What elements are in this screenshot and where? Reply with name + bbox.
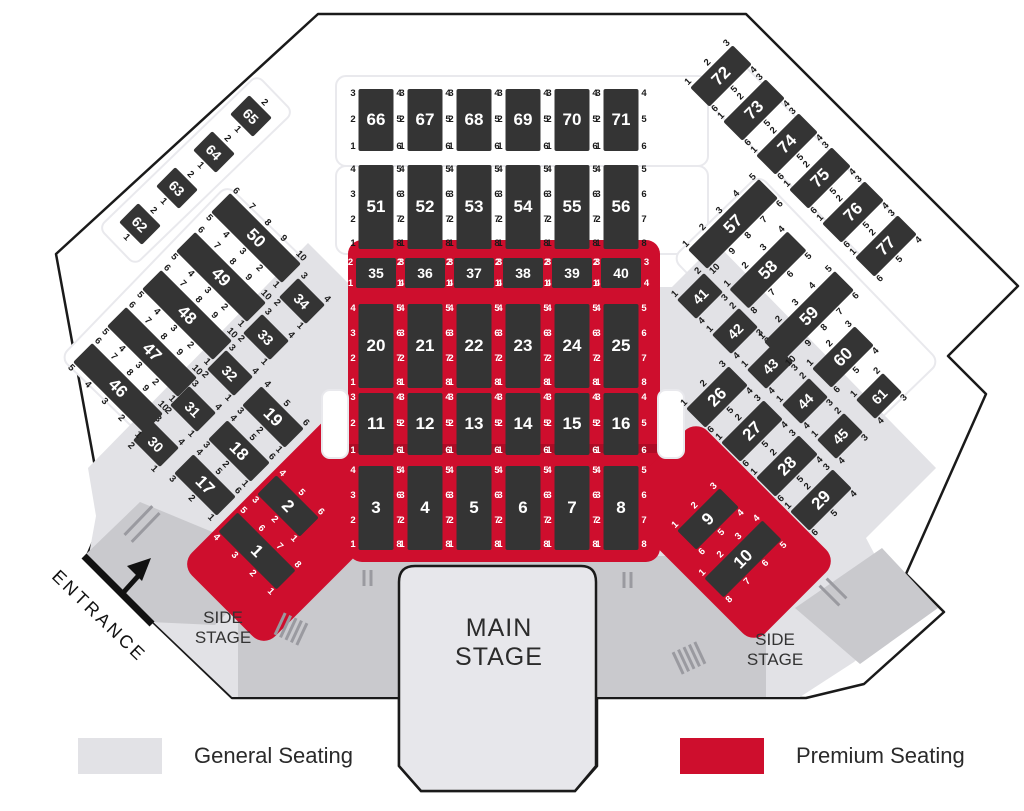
table-number: 13 (457, 393, 492, 455)
table-number: 37 (454, 258, 494, 288)
seat-numbers: 21 (541, 257, 552, 289)
table-number: 40 (601, 258, 641, 288)
seat-numbers: 456 (639, 88, 650, 152)
table-number: 24 (555, 304, 590, 388)
table-number: 21 (408, 304, 443, 388)
table-number: 14 (506, 393, 541, 455)
table-number: 54 (506, 165, 541, 249)
legend-general: General Seating (78, 738, 353, 774)
table-number: 11 (359, 393, 394, 455)
table-8[interactable]: 432185678 (593, 465, 650, 551)
seat-numbers: 321 (593, 392, 604, 456)
table-number: 66 (359, 89, 394, 151)
table-71[interactable]: 32171456 (593, 88, 650, 152)
table-number: 71 (604, 89, 639, 151)
seat-numbers: 4321 (544, 465, 555, 551)
premium-seating-label: Premium Seating (796, 743, 965, 769)
seat-numbers: 4321 (495, 164, 506, 250)
table-number: 3 (359, 466, 394, 550)
table-number: 69 (506, 89, 541, 151)
table-number: 6 (506, 466, 541, 550)
main-stage-label: MAIN STAGE (424, 614, 574, 672)
table-number: 39 (552, 258, 592, 288)
side-stage-left-label: SIDE STAGE (180, 608, 266, 647)
side-stage-right-label: SIDE STAGE (732, 630, 818, 669)
seat-numbers: 321 (495, 392, 506, 456)
seat-numbers: 21 (443, 257, 454, 289)
table-number: 55 (555, 165, 590, 249)
seat-numbers: 321 (348, 88, 359, 152)
seat-numbers: 21 (394, 257, 405, 289)
seat-numbers: 4321 (446, 164, 457, 250)
table-number: 20 (359, 304, 394, 388)
seat-numbers: 4321 (446, 303, 457, 389)
premium-seating-swatch (680, 738, 764, 774)
table-25[interactable]: 4321255678 (593, 303, 650, 389)
legend: General Seating Premium Seating (0, 738, 1024, 784)
seat-numbers: 321 (495, 88, 506, 152)
table-number: 70 (555, 89, 590, 151)
table-number: 35 (356, 258, 396, 288)
seat-numbers: 321 (446, 88, 457, 152)
seat-numbers: 321 (348, 392, 359, 456)
table-number: 53 (457, 165, 492, 249)
table-number: 4 (408, 466, 443, 550)
table-number: 7 (555, 466, 590, 550)
table-number: 67 (408, 89, 443, 151)
general-seating-label: General Seating (194, 743, 353, 769)
seat-numbers: 321 (593, 88, 604, 152)
table-number: 23 (506, 304, 541, 388)
table-16[interactable]: 32116456 (593, 392, 650, 456)
seat-numbers: 321 (446, 392, 457, 456)
general-seating-swatch (78, 738, 162, 774)
seat-numbers: 4321 (397, 164, 408, 250)
seat-numbers: 5678 (639, 465, 650, 551)
seat-numbers: 21 (590, 257, 601, 289)
table-number: 8 (604, 466, 639, 550)
table-number: 5 (457, 466, 492, 550)
seat-numbers: 4321 (397, 465, 408, 551)
seat-numbers: 4321 (495, 303, 506, 389)
seat-numbers: 21 (345, 257, 356, 289)
seat-numbers: 4321 (593, 164, 604, 250)
seat-numbers: 4321 (544, 303, 555, 389)
table-number: 16 (604, 393, 639, 455)
seat-numbers: 4321 (348, 303, 359, 389)
seat-numbers: 321 (397, 88, 408, 152)
table-number: 51 (359, 165, 394, 249)
table-number: 52 (408, 165, 443, 249)
table-number: 56 (604, 165, 639, 249)
seat-numbers: 5678 (639, 164, 650, 250)
table-40[interactable]: 214034 (590, 257, 652, 289)
seat-numbers: 4321 (348, 164, 359, 250)
seat-numbers: 21 (492, 257, 503, 289)
seat-numbers: 4321 (593, 303, 604, 389)
table-number: 25 (604, 304, 639, 388)
seat-numbers: 4321 (348, 465, 359, 551)
table-number: 22 (457, 304, 492, 388)
legend-premium: Premium Seating (680, 738, 965, 774)
table-number: 15 (555, 393, 590, 455)
seat-numbers: 321 (544, 88, 555, 152)
seating-chart: MAIN STAGE SIDE STAGE SIDE STAGE ENTRANC… (0, 0, 1024, 811)
seat-numbers: 4321 (397, 303, 408, 389)
table-number: 36 (405, 258, 445, 288)
seat-numbers: 34 (641, 257, 652, 289)
seat-numbers: 4321 (446, 465, 457, 551)
table-56[interactable]: 4321565678 (593, 164, 650, 250)
seat-numbers: 4321 (544, 164, 555, 250)
seat-numbers: 321 (544, 392, 555, 456)
table-number: 12 (408, 393, 443, 455)
seat-numbers: 321 (397, 392, 408, 456)
seat-numbers: 456 (639, 392, 650, 456)
seat-numbers: 5678 (639, 303, 650, 389)
seat-numbers: 4321 (593, 465, 604, 551)
table-number: 38 (503, 258, 543, 288)
table-number: 68 (457, 89, 492, 151)
seat-numbers: 4321 (495, 465, 506, 551)
